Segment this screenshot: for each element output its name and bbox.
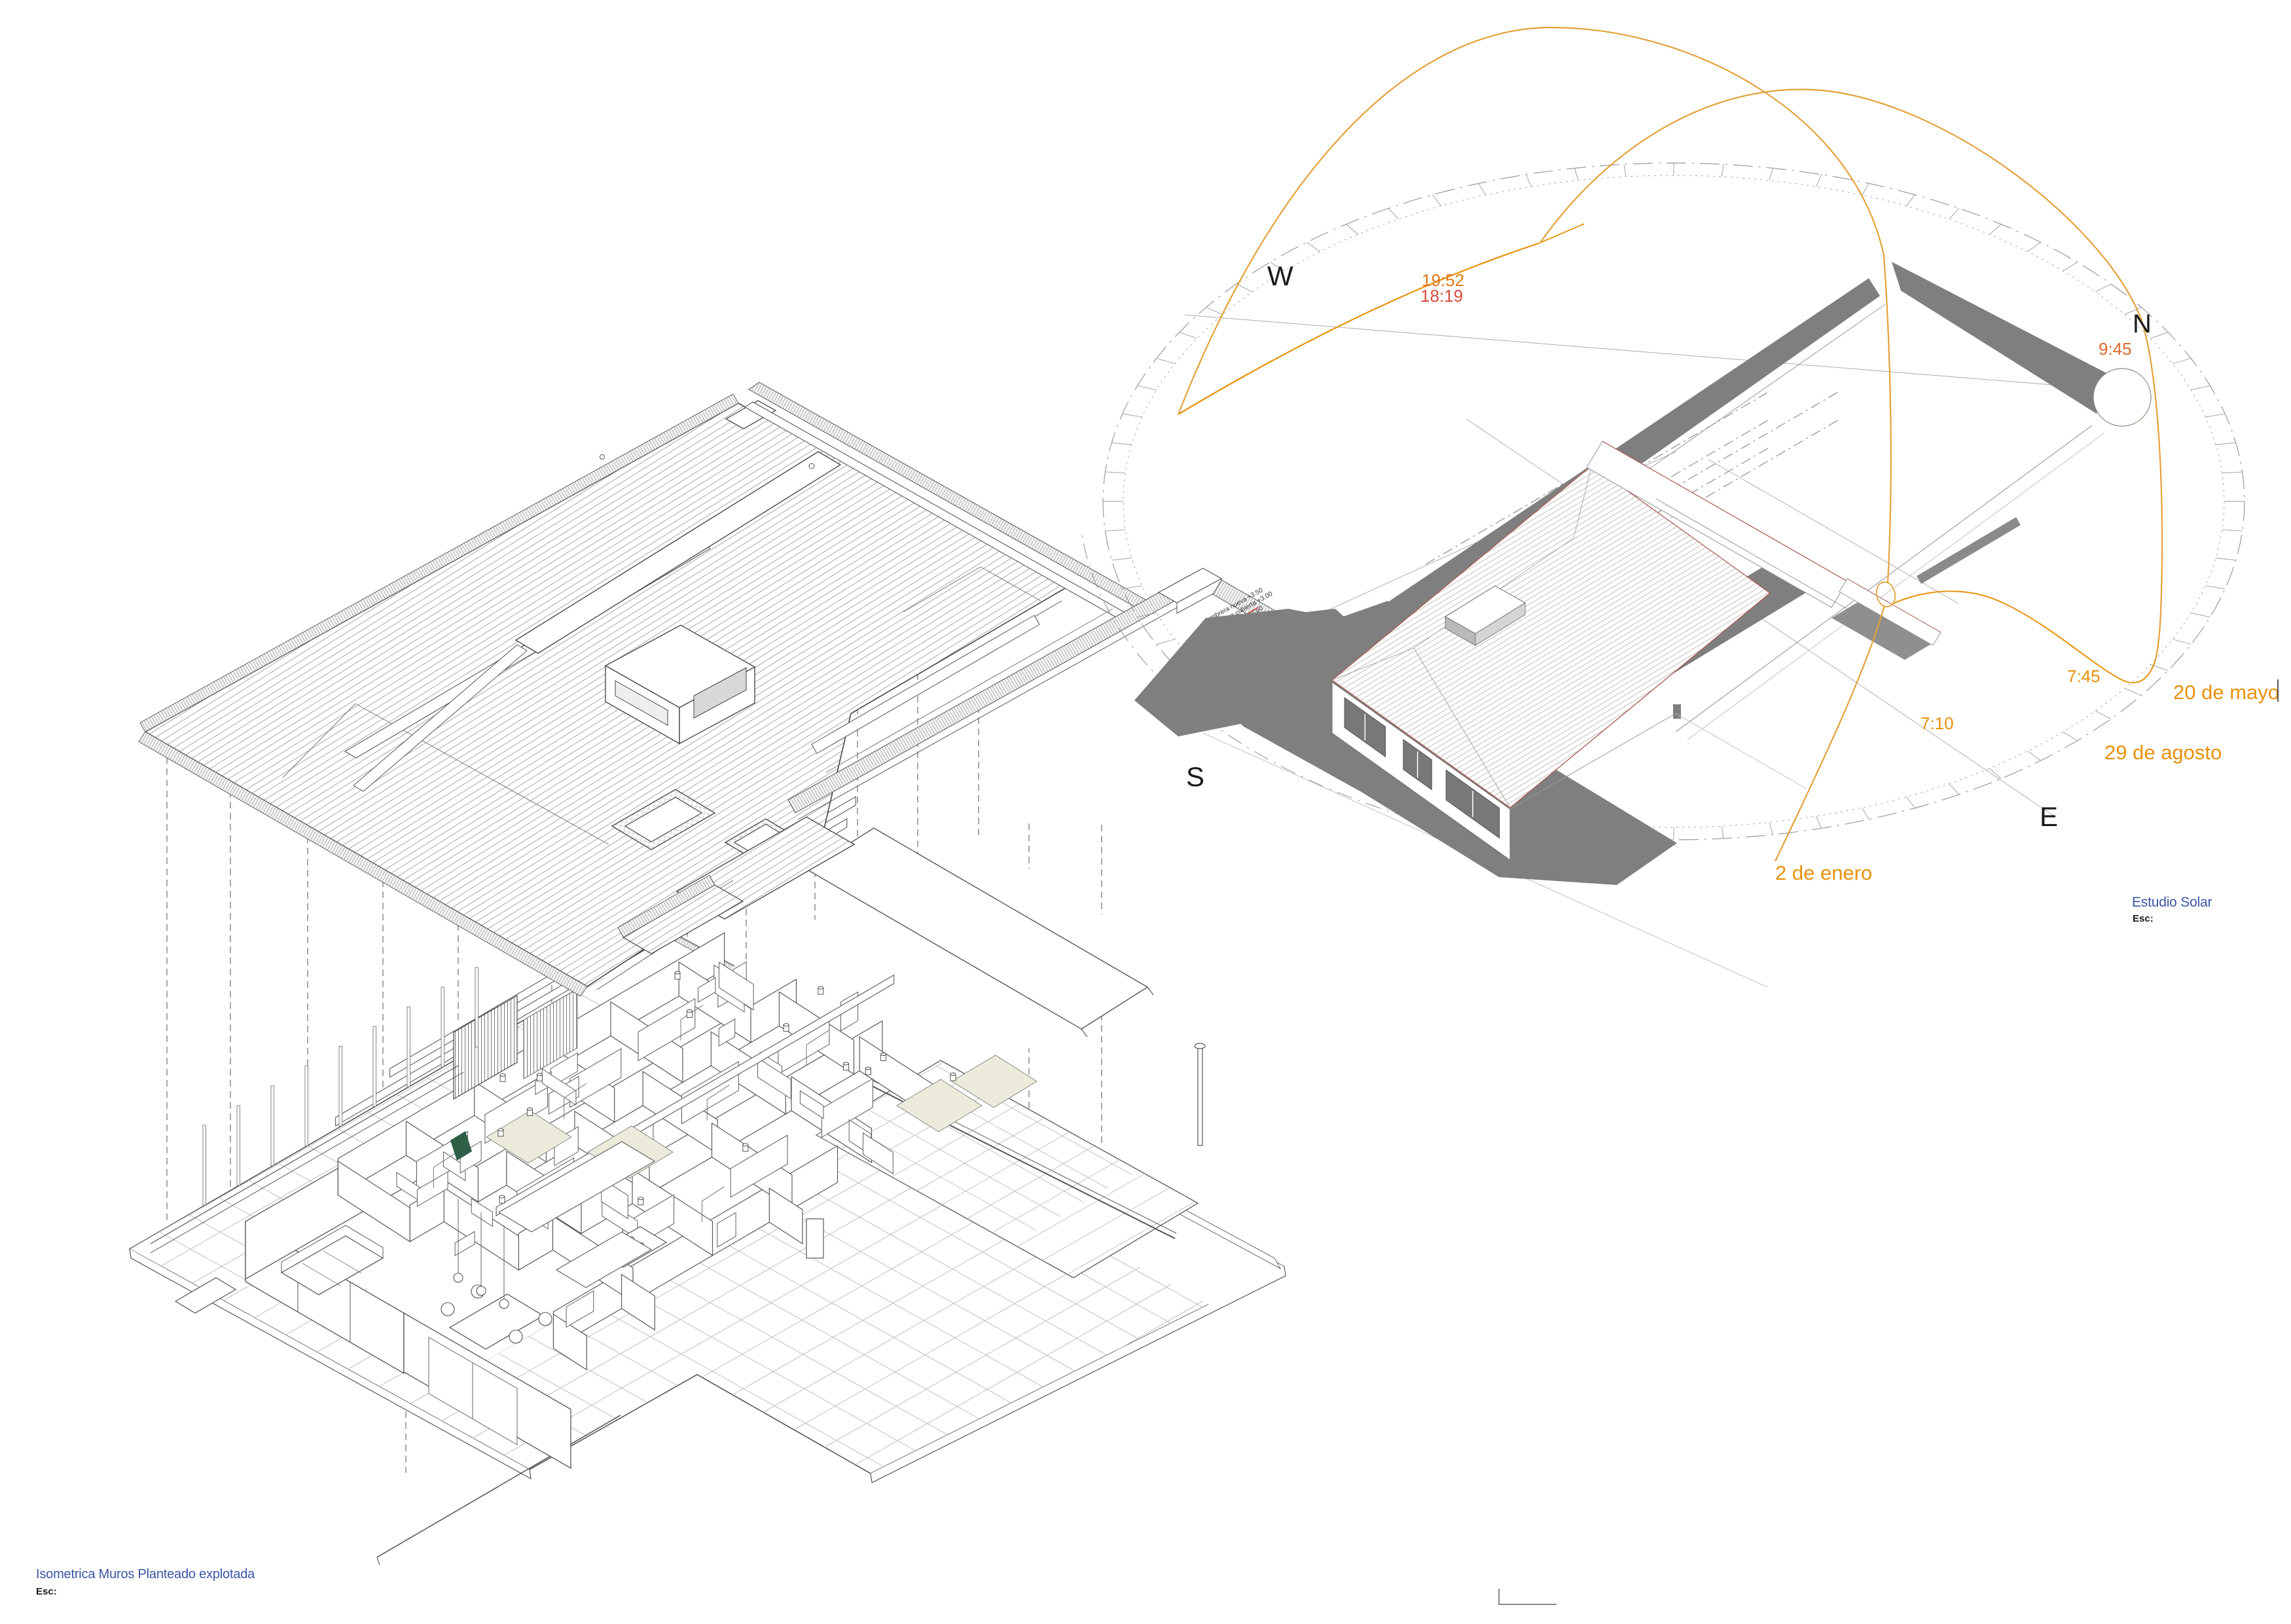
svg-text:2 de enero: 2 de enero: [1775, 861, 1872, 884]
svg-text:S: S: [1186, 761, 1204, 792]
svg-text:N: N: [2133, 310, 2152, 338]
svg-text:Estudio Solar: Estudio Solar: [2132, 895, 2212, 910]
svg-text:29 de agosto: 29 de agosto: [2104, 741, 2222, 764]
svg-text:Esc:: Esc:: [2133, 913, 2154, 924]
svg-text:20 de mayo: 20 de mayo: [2173, 681, 2279, 704]
svg-text:E: E: [2040, 801, 2058, 832]
svg-text:Isometrica Muros Planteado ex: Isometrica Muros Planteado explotada: [36, 1567, 255, 1581]
svg-text:W: W: [1267, 261, 1293, 291]
svg-text:7:10: 7:10: [1921, 713, 1954, 733]
svg-text:9:45: 9:45: [2099, 339, 2132, 359]
svg-text:Esc:: Esc:: [36, 1586, 57, 1597]
svg-text:7:45: 7:45: [2067, 666, 2101, 686]
svg-text:18:19: 18:19: [1420, 286, 1463, 306]
